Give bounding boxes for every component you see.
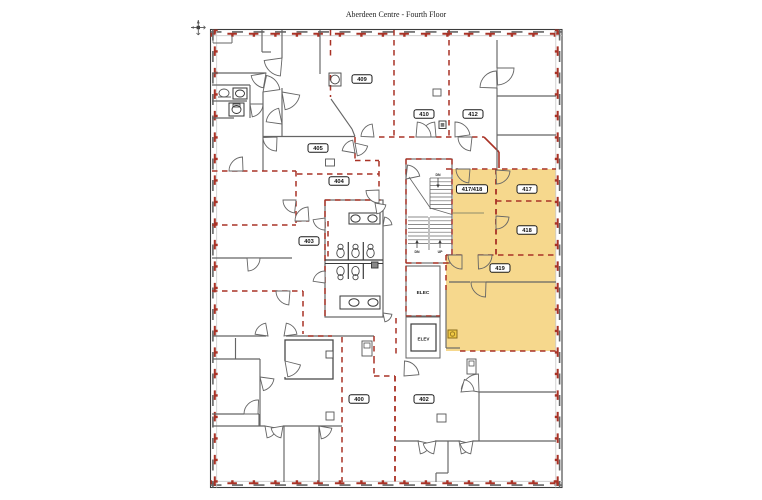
svg-text:ELEC: ELEC bbox=[417, 290, 430, 296]
svg-text:417: 417 bbox=[522, 187, 532, 193]
svg-text:ELEV: ELEV bbox=[418, 337, 431, 342]
svg-text:418: 418 bbox=[522, 228, 532, 234]
svg-text:404: 404 bbox=[334, 179, 344, 185]
svg-text:DN: DN bbox=[435, 173, 441, 177]
svg-text:409: 409 bbox=[357, 77, 367, 83]
svg-text:UP: UP bbox=[438, 250, 444, 254]
svg-text:DN: DN bbox=[414, 250, 420, 254]
svg-text:412: 412 bbox=[468, 112, 478, 118]
svg-text:400: 400 bbox=[354, 397, 364, 403]
svg-text:403: 403 bbox=[304, 239, 314, 245]
svg-text:405: 405 bbox=[313, 146, 323, 152]
svg-text:410: 410 bbox=[419, 112, 429, 118]
svg-text:417/418: 417/418 bbox=[462, 187, 483, 193]
svg-text:Aberdeen Centre - Fourth Floor: Aberdeen Centre - Fourth Floor bbox=[346, 10, 447, 19]
svg-text:402: 402 bbox=[419, 397, 429, 403]
svg-text:419: 419 bbox=[495, 266, 505, 272]
